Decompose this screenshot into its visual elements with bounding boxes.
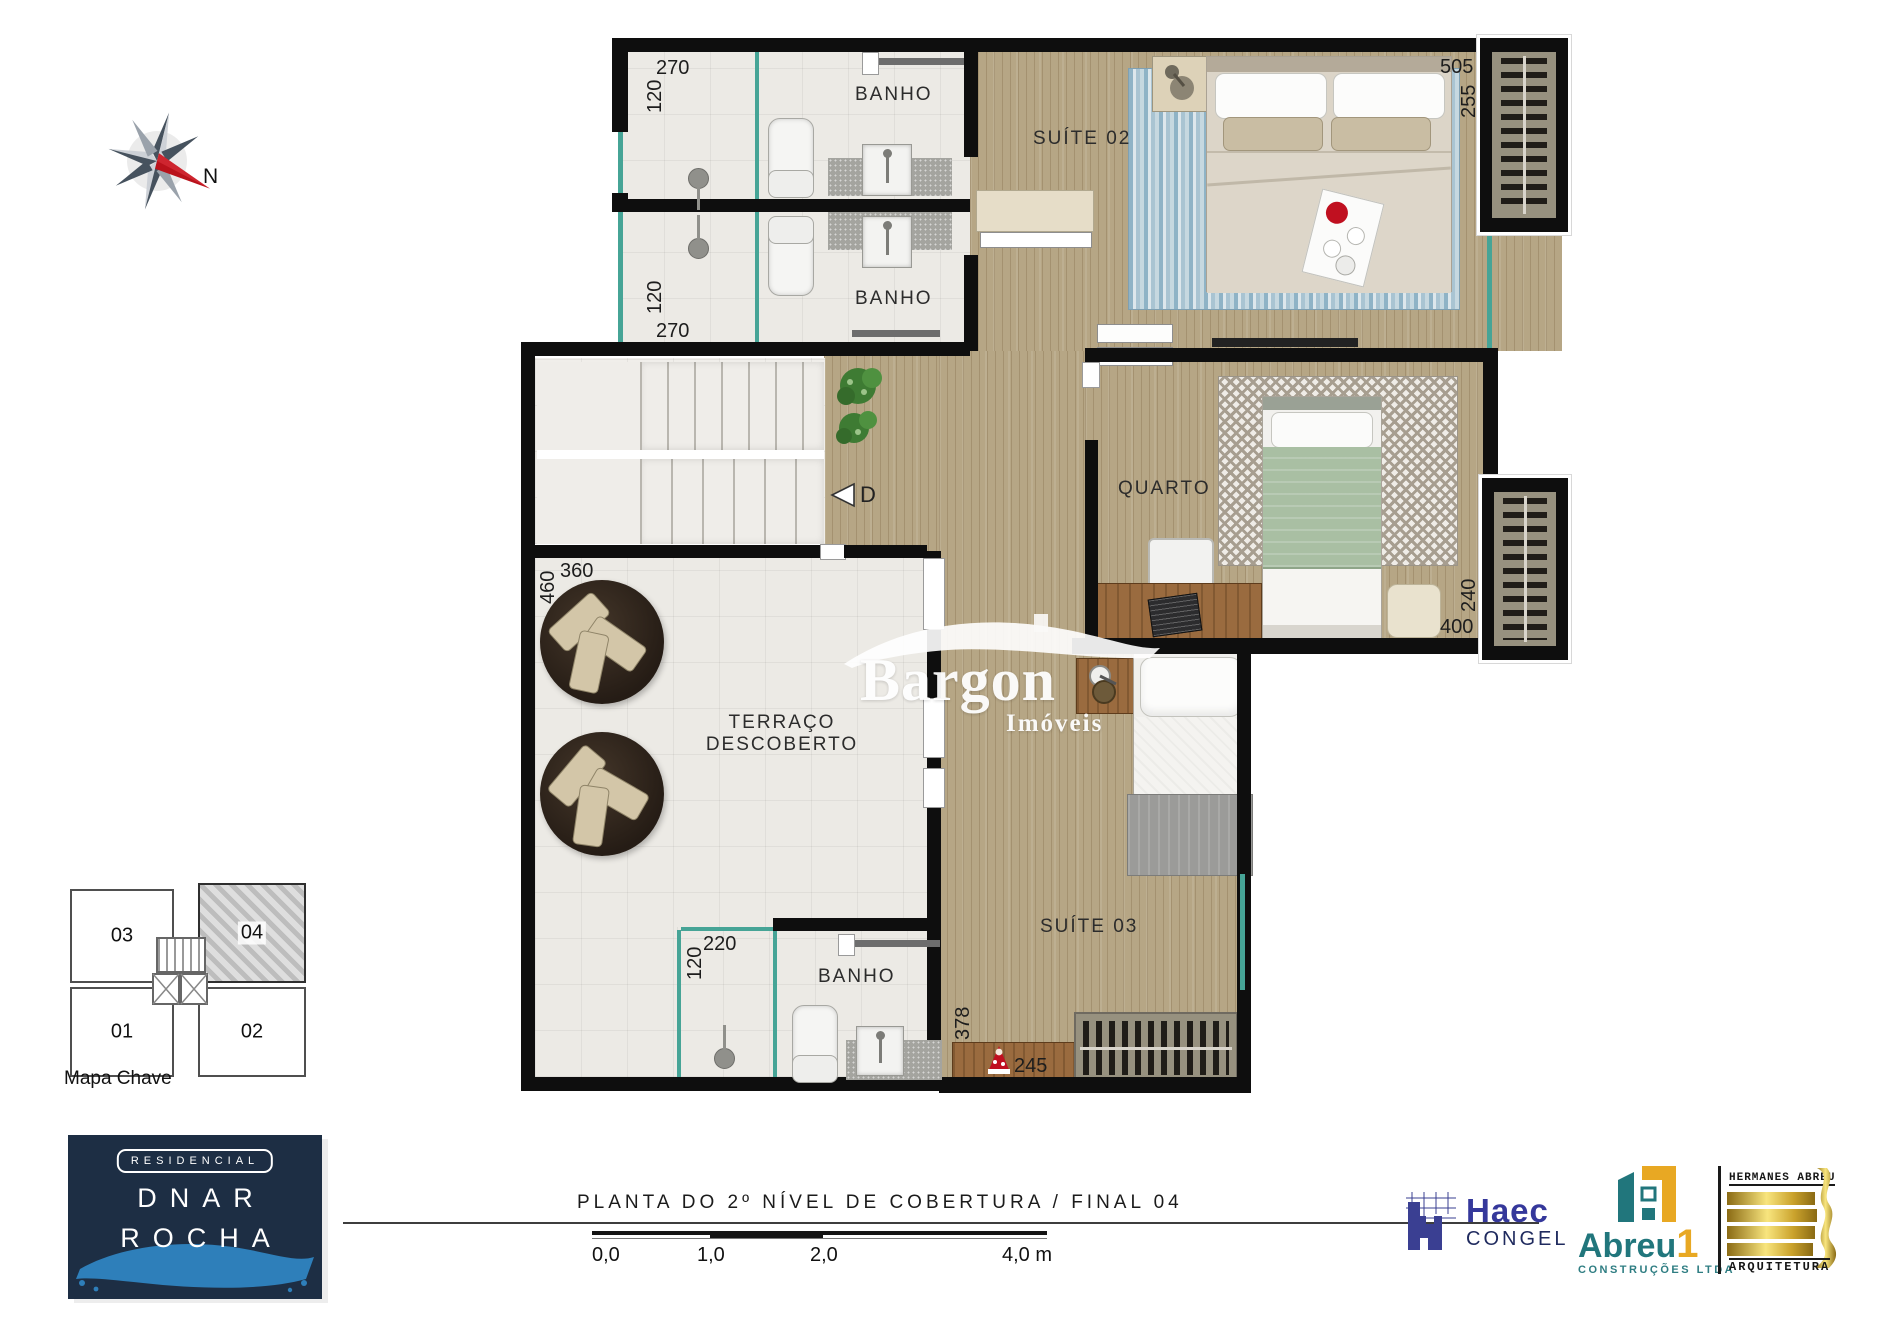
hermanes-bottom-text: ARQUITETURA <box>1729 1258 1830 1274</box>
quarto-bed-headboard <box>1263 397 1381 410</box>
scale-label-1: 1,0 <box>697 1244 725 1267</box>
louver-shutter <box>1494 492 1556 646</box>
sliding-door <box>852 330 940 337</box>
dim-banho-bottom-w: 220 <box>703 933 736 956</box>
abreu-subtitle: CONSTRUÇÕES LTDA <box>1578 1264 1735 1276</box>
abreu1-icon <box>1600 1164 1690 1226</box>
glass-wall <box>1240 874 1245 990</box>
glass-partition <box>681 927 773 931</box>
glass-partition <box>677 930 681 1077</box>
dim-banho-top-h: 120 <box>644 80 667 113</box>
gold-bar <box>1727 1226 1815 1239</box>
glass-partition <box>755 212 759 342</box>
wall <box>1483 348 1498 480</box>
key-map-core-elevators <box>152 973 208 1005</box>
scale-bar-segment <box>592 1231 710 1239</box>
shower-head-icon <box>714 1048 735 1069</box>
haec-name: Haec <box>1466 1192 1549 1230</box>
gold-bar <box>1727 1209 1817 1222</box>
terrace-door-frame <box>923 698 945 758</box>
residencial-badge: RESIDENCIAL <box>117 1149 273 1173</box>
gold-bar <box>1727 1192 1815 1205</box>
wall <box>1085 348 1483 362</box>
abreu-one: 1 <box>1676 1222 1698 1266</box>
louver-shutter <box>1492 52 1556 218</box>
suite02-pillow <box>1215 73 1327 119</box>
key-map-unit-04-highlighted: 04 <box>198 883 306 983</box>
toilet-icon <box>768 118 814 198</box>
compass-rose-icon <box>95 95 245 220</box>
stairs-landing-lower <box>537 459 642 544</box>
wall <box>964 255 978 351</box>
suite03-louver-vent <box>1074 1012 1238 1084</box>
glass-wall <box>618 132 623 342</box>
floor-plan-sheet: N <box>0 0 1900 1342</box>
wall <box>612 38 628 132</box>
plant-icon <box>828 362 892 454</box>
scale-label-4: 4,0 m <box>1002 1244 1052 1267</box>
terraco-label-line1: TERRAÇO <box>706 712 858 734</box>
terrace-door-frame <box>923 558 945 630</box>
key-map-core-stairs <box>156 937 206 973</box>
suite02-label: SUÍTE 02 <box>1033 128 1131 150</box>
sink-icon <box>862 144 912 196</box>
quarto-label: QUARTO <box>1118 478 1211 500</box>
key-map: 03 04 01 02 <box>60 875 320 1075</box>
suite03-sheet <box>1134 717 1248 795</box>
sliding-door <box>878 58 964 65</box>
dim-suite02-w: 505 <box>1440 56 1473 79</box>
banho-mid-label: BANHO <box>855 288 933 310</box>
gold-ribbon <box>1813 1166 1839 1270</box>
gold-bar <box>1727 1243 1813 1256</box>
suite02-wardrobe-symbol <box>1097 324 1173 343</box>
suite02-entry-doorleaf <box>980 232 1092 248</box>
dim-banho-bottom-h: 120 <box>684 947 707 980</box>
haec-congel-logo: Haec CONGEL <box>1400 1186 1570 1256</box>
quarto-pillow <box>1271 412 1373 448</box>
sheet-title: PLANTA DO 2º NÍVEL DE COBERTURA / FINAL … <box>577 1192 1183 1214</box>
quarto-sheet <box>1263 569 1381 625</box>
toilet-icon <box>792 1005 838 1083</box>
wall <box>1085 440 1098 652</box>
tray-plate-red <box>1324 199 1351 226</box>
dim-quarto-h: 240 <box>1458 579 1481 612</box>
key-map-title: Mapa Chave <box>64 1068 172 1090</box>
abreu-name-text: Abreu <box>1578 1227 1676 1265</box>
compass-north-label: N <box>203 165 218 189</box>
dim-banho-mid-w: 270 <box>656 320 689 343</box>
dim-suite03-w: 245 <box>1014 1055 1047 1078</box>
wall <box>521 545 821 558</box>
suite02-pillow <box>1333 73 1445 119</box>
dim-suite03-h: 378 <box>952 1007 975 1040</box>
glass-partition <box>755 52 759 199</box>
wall <box>964 45 978 157</box>
door-jamb <box>838 934 855 956</box>
residencial-dnar-rocha-logo: RESIDENCIAL DNAR ROCHA <box>68 1135 322 1299</box>
brand-name-line1: DNAR <box>68 1183 322 1214</box>
terrace-door-frame <box>923 768 945 808</box>
banho-bottom-label: BANHO <box>818 966 896 988</box>
wall <box>612 38 1568 52</box>
brand-name-line2: ROCHA <box>68 1223 322 1254</box>
stairs-down-label: D <box>860 482 876 508</box>
scale-label-0: 0,0 <box>592 1244 620 1267</box>
wall <box>844 545 927 558</box>
suite03-clock-icon <box>1082 662 1128 708</box>
dim-banho-top-w: 270 <box>656 57 689 80</box>
stairs-down-arrow-icon <box>828 482 858 508</box>
divider-rule <box>343 1222 1539 1224</box>
key-map-unit-02: 02 <box>198 987 306 1077</box>
quarto-laptop <box>1148 593 1203 638</box>
suite03-pillow <box>1140 657 1242 717</box>
dim-quarto-w: 400 <box>1440 616 1473 639</box>
hermanes-abreu-logo: HERMANES ABREU ARQUITETURA <box>1718 1166 1833 1274</box>
dim-terraco-w: 360 <box>560 560 593 583</box>
dim-banho-mid-h: 120 <box>644 281 667 314</box>
key-map-unit-label: 04 <box>238 922 266 945</box>
scale-label-2: 2,0 <box>810 1244 838 1267</box>
scale-bar-segment <box>710 1231 823 1239</box>
suite03-santa-figurine <box>984 1044 1014 1076</box>
terraco-label: TERRAÇO DESCOBERTO <box>706 712 858 756</box>
terrace-round-chair <box>540 732 664 856</box>
wall <box>773 918 941 931</box>
suite03-blanket <box>1127 794 1253 876</box>
glass-partition <box>773 930 777 1077</box>
glass-wall <box>1487 232 1492 350</box>
suite02-bed-headboard <box>1207 57 1451 72</box>
stairs-lower-flight <box>640 459 824 544</box>
key-map-unit-label: 02 <box>238 1021 266 1044</box>
wall <box>939 1077 1251 1093</box>
shower-head-icon <box>688 168 709 189</box>
door-jamb <box>862 52 879 75</box>
scale-bar-segment <box>823 1231 1047 1239</box>
quarto-bed <box>1262 396 1382 648</box>
banho-top-label: BANHO <box>855 84 933 106</box>
wall <box>521 342 970 356</box>
haec-icon <box>1404 1190 1464 1252</box>
stairs-upper-flight <box>640 362 824 450</box>
wall <box>1237 642 1251 1091</box>
quarto-pouf <box>1387 584 1441 638</box>
dim-suite02-h: 255 <box>1458 85 1481 118</box>
door-jamb <box>1082 362 1100 388</box>
abreu1-logo: Abreu1 CONSTRUÇÕES LTDA <box>1578 1162 1708 1282</box>
key-map-unit-label: 03 <box>108 925 136 948</box>
dim-terraco-h: 460 <box>537 571 560 604</box>
suite02-bed <box>1206 56 1452 292</box>
quarto-duvet-green <box>1263 447 1381 569</box>
tray-teapot <box>1333 253 1357 277</box>
toilet-icon <box>768 216 814 296</box>
tray-plate <box>1345 225 1367 247</box>
sliding-door <box>852 940 940 947</box>
suite02-entry-sideboard <box>976 190 1094 232</box>
wall <box>618 199 970 212</box>
haec-subtitle: CONGEL <box>1466 1228 1568 1251</box>
wall <box>927 551 941 1091</box>
suite02-tv-console <box>1212 338 1358 347</box>
wall <box>521 342 535 1091</box>
suite02-cushion <box>1331 117 1431 151</box>
stairs-landing-upper <box>537 362 642 450</box>
door-jamb <box>820 544 846 560</box>
abreu-name: Abreu1 <box>1578 1222 1698 1267</box>
sink-icon <box>862 216 912 268</box>
sink-icon <box>856 1026 904 1076</box>
suite02-lamp-left-icon <box>1158 60 1202 106</box>
suite03-label: SUÍTE 03 <box>1040 916 1138 938</box>
shower-head-icon <box>688 238 709 259</box>
key-map-unit-label: 01 <box>108 1021 136 1044</box>
terraco-label-line2: DESCOBERTO <box>706 734 858 756</box>
suite02-cushion <box>1223 117 1323 151</box>
